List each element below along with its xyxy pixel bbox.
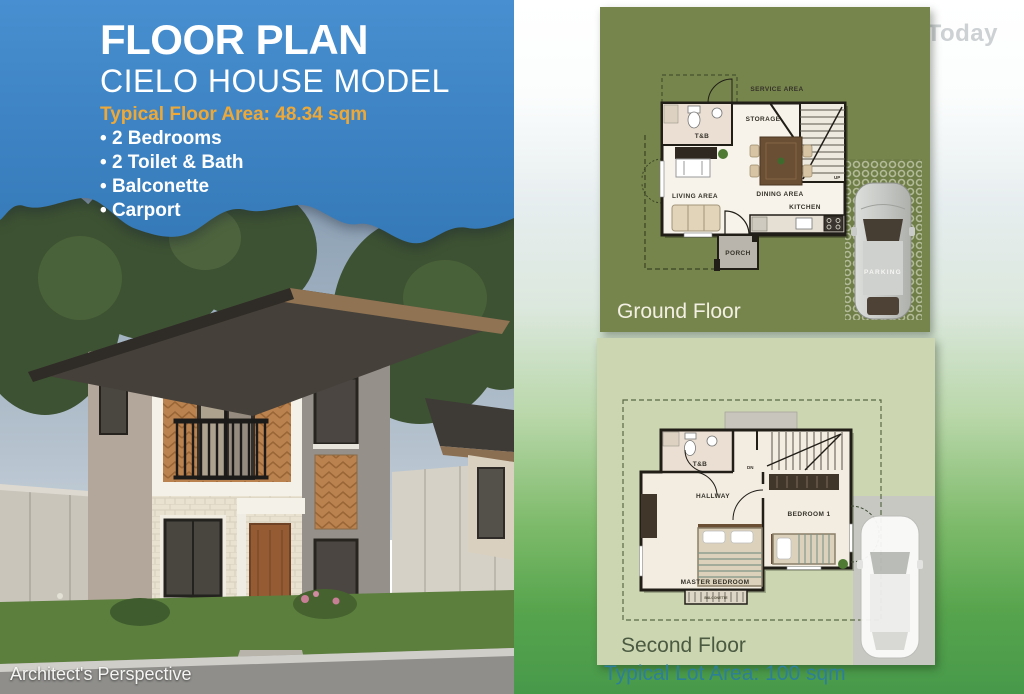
feature-toilet-bath: 2 Toilet & Bath xyxy=(100,151,244,175)
ground-floor-plan: PARKING xyxy=(600,7,930,332)
parking-label: PARKING xyxy=(864,269,902,276)
balconette-label: BALCONETTE xyxy=(704,596,728,600)
hallway-label: HALLWAY xyxy=(696,493,730,500)
second-floor-caption: Second Floor xyxy=(621,634,746,657)
ground-floor-caption: Ground Floor xyxy=(617,300,741,323)
ground-floor-panel: PARKING xyxy=(600,7,930,332)
page-title: FLOOR PLAN xyxy=(100,16,368,64)
perspective-caption: Architect's Perspective xyxy=(10,664,192,685)
feature-bedrooms: 2 Bedrooms xyxy=(100,127,244,151)
ghost-car xyxy=(857,516,923,658)
feature-carport: Carport xyxy=(100,199,244,223)
house-model-subtitle: CIELO HOUSE MODEL xyxy=(100,63,450,100)
dn-label: DN xyxy=(747,465,754,470)
second-floor-plan: T&B DN HALLWAY BEDROOM 1 MASTER BEDROOM … xyxy=(597,338,935,665)
feature-balconette: Balconette xyxy=(100,175,244,199)
floor-plans-panel: #LetsBeginToday xyxy=(514,0,1024,694)
feature-list: 2 Bedrooms 2 Toilet & Bath Balconette Ca… xyxy=(100,127,244,223)
poster: FLOOR PLAN CIELO HOUSE MODEL Typical Flo… xyxy=(0,0,1024,694)
floor-area-text: Typical Floor Area: 48.34 sqm xyxy=(100,104,367,126)
parked-car: PARKING xyxy=(851,183,915,319)
service-area-label: SERVICE AREA xyxy=(750,86,803,93)
dining-area-label: DINING AREA xyxy=(756,191,803,198)
perspective-panel: FLOOR PLAN CIELO HOUSE MODEL Typical Flo… xyxy=(0,0,514,694)
tb2-label: T&B xyxy=(693,461,708,468)
kitchen-label: KITCHEN xyxy=(789,204,821,211)
porch-label: PORCH xyxy=(725,250,750,257)
up-label: UP xyxy=(834,175,840,180)
second-floor-panel: T&B DN HALLWAY BEDROOM 1 MASTER BEDROOM … xyxy=(597,338,935,665)
living-area-label: LIVING AREA xyxy=(672,193,718,200)
storage-label: STORAGE xyxy=(746,116,781,123)
bedroom1-label: BEDROOM 1 xyxy=(788,511,831,518)
master-bedroom-label: MASTER BEDROOM xyxy=(681,579,750,586)
tb-label: T&B xyxy=(695,133,710,140)
lot-area-text: Typical Lot Area: 100 sqm xyxy=(604,662,846,686)
